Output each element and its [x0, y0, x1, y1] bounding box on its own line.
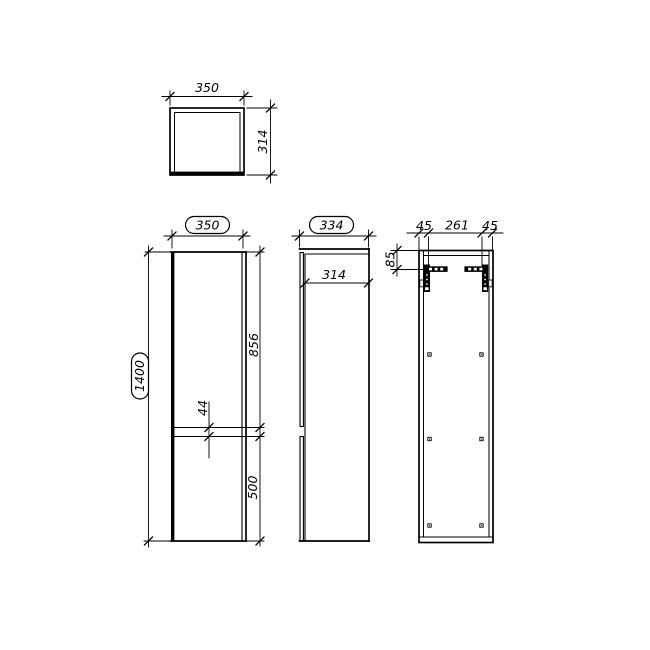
side-view-body-depth-dimension: 314 — [301, 267, 373, 287]
side-view-upper-door-profile — [300, 253, 303, 427]
left-bracket-hook-tab — [420, 280, 424, 287]
front-view-height-dimension: 1400 — [132, 246, 153, 547]
top-view-depth-dimension: 314 — [247, 100, 277, 183]
back-view-bracket-drop-text: 85 — [383, 252, 398, 268]
top-view-depth-text: 314 — [255, 130, 270, 154]
top-view-carcass-outline — [170, 108, 244, 175]
side-view-depth-dimension: 334 — [292, 217, 376, 248]
side-view: 334 314 — [292, 217, 376, 542]
back-view-bracket-drop-dimension: 85 — [383, 244, 424, 276]
front-view: 350 1400 856 500 44 — [132, 217, 265, 548]
left-hanger-bracket — [420, 265, 448, 293]
front-view-divider-text: 44 — [195, 400, 210, 416]
right-hanger-bracket — [464, 265, 492, 293]
drawing-canvas: 350 314 — [0, 0, 650, 650]
top-view: 350 314 — [162, 80, 277, 183]
back-view-right-offset-text: 45 — [482, 218, 498, 233]
side-view-depth-text: 334 — [320, 218, 344, 233]
side-view-body-depth-text: 314 — [322, 267, 346, 282]
front-view-upper-door-text: 856 — [246, 333, 261, 357]
front-view-width-dimension: 350 — [164, 217, 250, 249]
top-view-door-front-edge — [170, 172, 244, 175]
front-view-left-edge — [171, 252, 174, 541]
front-view-width-text: 350 — [196, 218, 220, 233]
top-view-width-text: 350 — [195, 80, 219, 95]
cabinet-technical-drawing: 350 314 — [0, 0, 650, 650]
front-view-sections-dimension: 856 500 — [245, 246, 264, 546]
back-view-outline — [419, 251, 493, 543]
front-view-lower-door-text: 500 — [245, 476, 260, 500]
front-view-height-text: 1400 — [132, 360, 147, 392]
front-view-divider-dimension: 44 — [195, 400, 213, 458]
side-view-lower-door-profile — [300, 437, 303, 542]
back-view-connector-holes — [428, 353, 483, 527]
back-view-left-offset-text: 45 — [416, 218, 432, 233]
back-view-span-text: 261 — [445, 218, 469, 233]
back-view: 45 261 45 85 — [383, 218, 504, 543]
top-view-width-dimension: 350 — [162, 80, 252, 105]
right-bracket-hook-tab — [489, 280, 493, 287]
